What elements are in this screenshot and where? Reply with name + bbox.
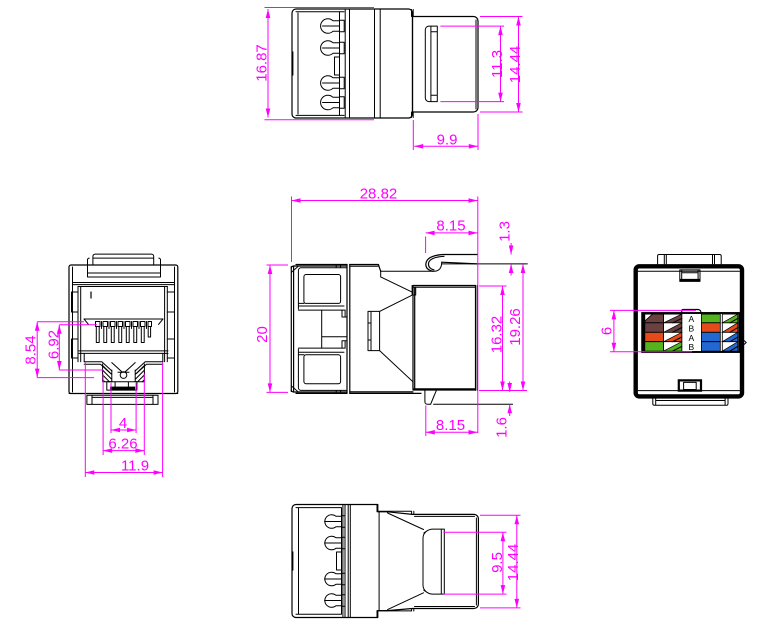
svg-text:6: 6 [598, 327, 615, 335]
svg-text:4: 4 [119, 415, 127, 432]
svg-text:11.3: 11.3 [489, 50, 506, 78]
svg-text:9.5: 9.5 [489, 552, 506, 573]
svg-text:9.9: 9.9 [437, 131, 458, 148]
svg-text:1.3: 1.3 [496, 221, 513, 242]
svg-text:B: B [688, 342, 694, 352]
svg-text:19.26: 19.26 [507, 308, 524, 346]
svg-text:8.54: 8.54 [23, 335, 40, 364]
svg-text:16.32: 16.32 [488, 316, 505, 354]
svg-text:8.15: 8.15 [436, 218, 465, 235]
svg-text:6.26: 6.26 [108, 435, 137, 452]
svg-text:11.9: 11.9 [121, 457, 149, 474]
svg-text:6.92: 6.92 [46, 330, 63, 359]
svg-text:1.6: 1.6 [493, 417, 510, 438]
svg-text:8.15: 8.15 [436, 417, 465, 434]
svg-text:16.87: 16.87 [253, 44, 270, 82]
svg-text:14.44: 14.44 [505, 544, 522, 582]
svg-text:14.44: 14.44 [507, 46, 524, 84]
svg-text:20: 20 [254, 326, 271, 343]
svg-text:28.82: 28.82 [360, 185, 398, 202]
